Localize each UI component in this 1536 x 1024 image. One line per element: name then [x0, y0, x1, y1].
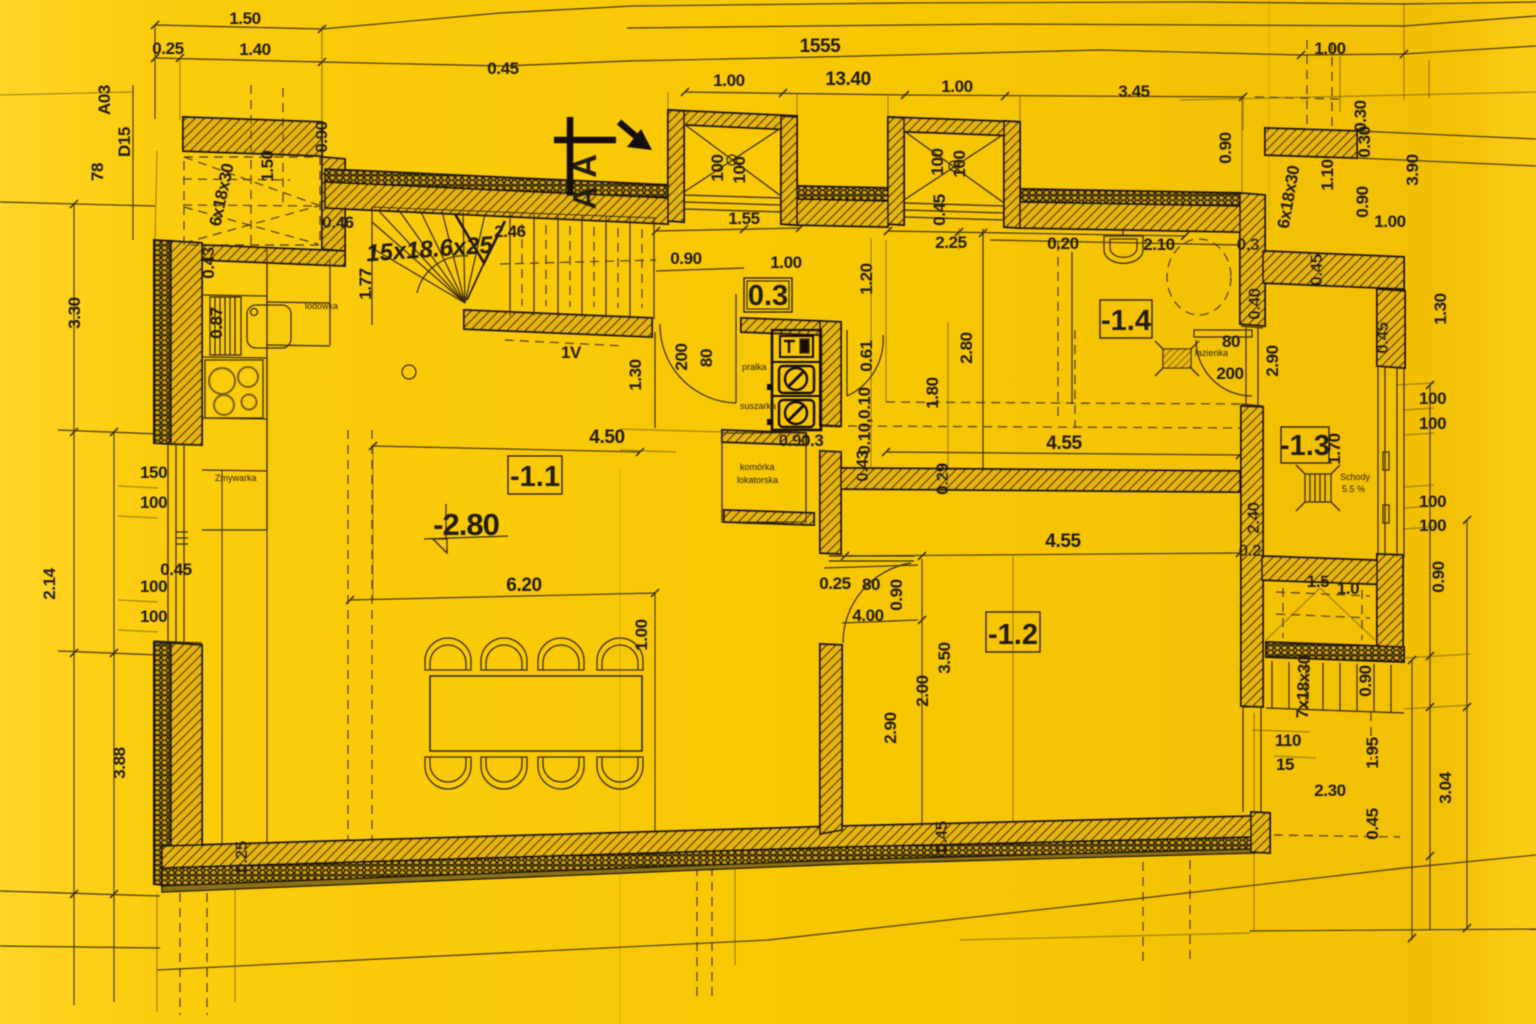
- svg-text:A: A: [566, 154, 603, 178]
- svg-text:lokatorska: lokatorska: [737, 475, 778, 485]
- svg-text:100: 100: [730, 156, 749, 183]
- svg-text:0.45: 0.45: [1307, 254, 1326, 286]
- svg-text:100: 100: [708, 154, 727, 181]
- svg-text:0.25: 0.25: [152, 39, 184, 58]
- svg-text:-1.1: -1.1: [510, 461, 560, 493]
- svg-text:150: 150: [140, 463, 167, 482]
- svg-text:1.00: 1.00: [941, 77, 973, 96]
- svg-text:0.90: 0.90: [1429, 561, 1448, 593]
- svg-text:lodówka: lodówka: [305, 301, 338, 311]
- svg-text:0.45: 0.45: [932, 821, 951, 853]
- svg-text:4.55: 4.55: [1046, 433, 1082, 454]
- svg-text:0.45: 0.45: [487, 59, 519, 78]
- svg-text:1.00: 1.00: [770, 253, 802, 272]
- svg-text:1.50: 1.50: [229, 9, 261, 28]
- svg-text:0.40: 0.40: [1245, 288, 1264, 320]
- svg-text:D15: D15: [115, 127, 134, 157]
- svg-text:2.30: 2.30: [1314, 781, 1346, 800]
- svg-text:0.45: 0.45: [1363, 808, 1382, 840]
- svg-text:1.30: 1.30: [1431, 293, 1450, 325]
- svg-text:100: 100: [140, 577, 167, 596]
- svg-text:80: 80: [697, 349, 716, 367]
- svg-text:100: 100: [140, 607, 167, 626]
- svg-text:Schody: Schody: [1340, 472, 1371, 482]
- svg-text:3.45: 3.45: [1118, 82, 1150, 101]
- svg-text:-1.2: -1.2: [988, 619, 1038, 651]
- svg-text:200: 200: [1216, 364, 1243, 383]
- svg-text:3.90: 3.90: [1403, 154, 1422, 186]
- svg-text:0.2: 0.2: [1239, 541, 1261, 560]
- svg-text:1.80: 1.80: [923, 377, 942, 409]
- svg-text:1.50: 1.50: [258, 150, 277, 182]
- svg-text:1.5: 1.5: [1307, 572, 1329, 591]
- svg-text:0.61: 0.61: [857, 340, 876, 372]
- svg-text:0.90: 0.90: [887, 579, 906, 611]
- svg-text:2.90: 2.90: [881, 712, 900, 744]
- svg-text:-1.4: -1.4: [1101, 305, 1151, 337]
- svg-text:0.30: 0.30: [1355, 126, 1374, 158]
- svg-text:0.43: 0.43: [199, 247, 218, 279]
- svg-text:78: 78: [88, 163, 107, 181]
- svg-text:-2.80: -2.80: [433, 507, 499, 542]
- svg-text:0.45: 0.45: [160, 560, 192, 579]
- svg-text:4.00: 4.00: [852, 606, 884, 625]
- svg-text:80: 80: [862, 575, 880, 594]
- svg-text:-1.3: -1.3: [1280, 430, 1330, 462]
- svg-text:0.43: 0.43: [853, 450, 872, 482]
- svg-text:200: 200: [672, 343, 691, 370]
- svg-text:2.00: 2.00: [913, 675, 932, 707]
- svg-text:1.10: 1.10: [1318, 159, 1337, 191]
- svg-text:0.25: 0.25: [819, 574, 851, 593]
- svg-text:110: 110: [1275, 731, 1301, 750]
- svg-text:1.0: 1.0: [1337, 579, 1359, 598]
- svg-text:1.55: 1.55: [728, 209, 760, 228]
- svg-text:0.90: 0.90: [312, 121, 331, 153]
- svg-text:2.80: 2.80: [957, 332, 976, 364]
- svg-text:A: A: [566, 186, 603, 210]
- svg-text:3.88: 3.88: [110, 747, 129, 779]
- svg-text:2.90: 2.90: [1263, 345, 1282, 377]
- svg-text:0.45: 0.45: [1373, 322, 1392, 354]
- svg-text:0.10,0.10: 0.10,0.10: [855, 387, 874, 454]
- svg-text:4.50: 4.50: [589, 427, 624, 448]
- svg-text:6.20: 6.20: [506, 575, 541, 596]
- svg-text:1.95: 1.95: [1363, 737, 1382, 769]
- svg-text:0.46: 0.46: [322, 213, 354, 232]
- svg-text:pralka: pralka: [742, 362, 767, 372]
- svg-text:0.45: 0.45: [930, 194, 949, 226]
- svg-text:0.90: 0.90: [1353, 186, 1372, 218]
- svg-text:1.00: 1.00: [713, 71, 745, 90]
- svg-text:1.40: 1.40: [239, 40, 271, 59]
- svg-text:1.20: 1.20: [857, 263, 876, 295]
- svg-text:100: 100: [928, 148, 947, 175]
- svg-text:łazienka: łazienka: [1195, 348, 1228, 358]
- svg-text:suszarka: suszarka: [740, 401, 776, 411]
- svg-text:15: 15: [1276, 755, 1294, 774]
- svg-text:100: 100: [1419, 516, 1446, 535]
- svg-text:100: 100: [140, 493, 167, 512]
- svg-text:0.25: 0.25: [232, 841, 251, 873]
- svg-text:0.3: 0.3: [1237, 235, 1259, 254]
- svg-text:5.5 %: 5.5 %: [1342, 484, 1365, 494]
- svg-text:2.46: 2.46: [494, 222, 526, 241]
- svg-text:0.29: 0.29: [933, 463, 952, 495]
- svg-text:1555: 1555: [800, 36, 842, 57]
- svg-text:3.04: 3.04: [1436, 771, 1455, 803]
- svg-text:100: 100: [1419, 492, 1446, 511]
- svg-text:A03: A03: [95, 85, 114, 115]
- svg-text:0.87: 0.87: [207, 307, 226, 339]
- svg-text:1.70: 1.70: [1325, 433, 1344, 465]
- svg-text:13.40: 13.40: [825, 69, 871, 90]
- svg-text:4.55: 4.55: [1045, 531, 1081, 552]
- svg-text:0.90.3: 0.90.3: [779, 431, 824, 450]
- svg-text:3.50: 3.50: [935, 642, 954, 674]
- svg-text:0.90: 0.90: [670, 249, 702, 268]
- svg-text:7x18x30: 7x18x30: [1293, 655, 1314, 719]
- svg-text:2.14: 2.14: [40, 567, 59, 599]
- svg-text:1.00: 1.00: [1374, 212, 1406, 231]
- svg-text:1.00: 1.00: [1314, 39, 1346, 58]
- svg-text:0.90: 0.90: [1216, 132, 1235, 164]
- svg-text:0.3: 0.3: [748, 280, 788, 312]
- svg-text:1.00: 1.00: [632, 619, 651, 651]
- svg-text:2.10: 2.10: [1143, 235, 1175, 254]
- svg-text:3.30: 3.30: [65, 297, 84, 329]
- svg-text:2.40: 2.40: [1244, 502, 1263, 534]
- svg-text:0.90: 0.90: [1356, 665, 1375, 697]
- svg-text:0.20: 0.20: [1047, 234, 1079, 253]
- svg-text:1.30: 1.30: [626, 359, 645, 391]
- svg-text:1V: 1V: [561, 343, 582, 362]
- svg-text:100: 100: [1419, 389, 1446, 408]
- svg-text:1.77: 1.77: [356, 268, 375, 300]
- svg-text:100: 100: [1419, 414, 1446, 433]
- svg-text:100: 100: [950, 150, 969, 177]
- svg-text:komórka: komórka: [740, 462, 775, 472]
- svg-text:2.25: 2.25: [935, 233, 967, 252]
- svg-text:Zmywarka: Zmywarka: [215, 473, 257, 483]
